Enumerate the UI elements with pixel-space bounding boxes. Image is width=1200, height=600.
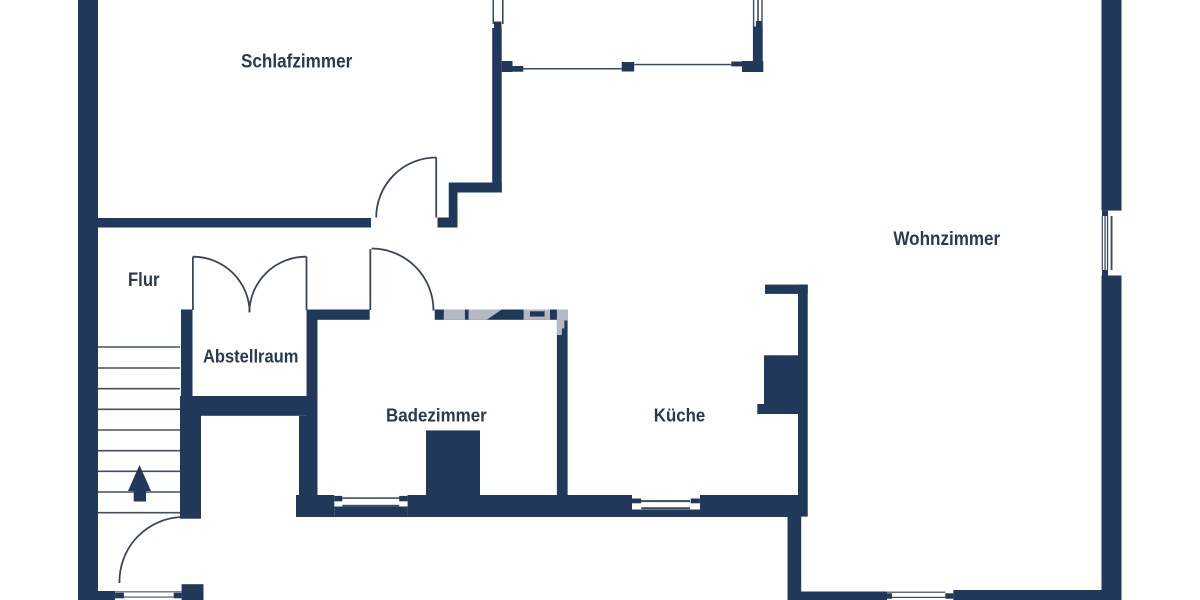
svg-text:Flur: Flur — [128, 270, 160, 291]
svg-text:Abstellraum: Abstellraum — [203, 347, 298, 367]
svg-text:Wohnzimmer: Wohnzimmer — [893, 229, 1000, 250]
svg-text:Schlafzimmer: Schlafzimmer — [241, 51, 353, 72]
svg-text:Küche: Küche — [654, 406, 706, 426]
svg-text:Badezimmer: Badezimmer — [386, 406, 487, 426]
